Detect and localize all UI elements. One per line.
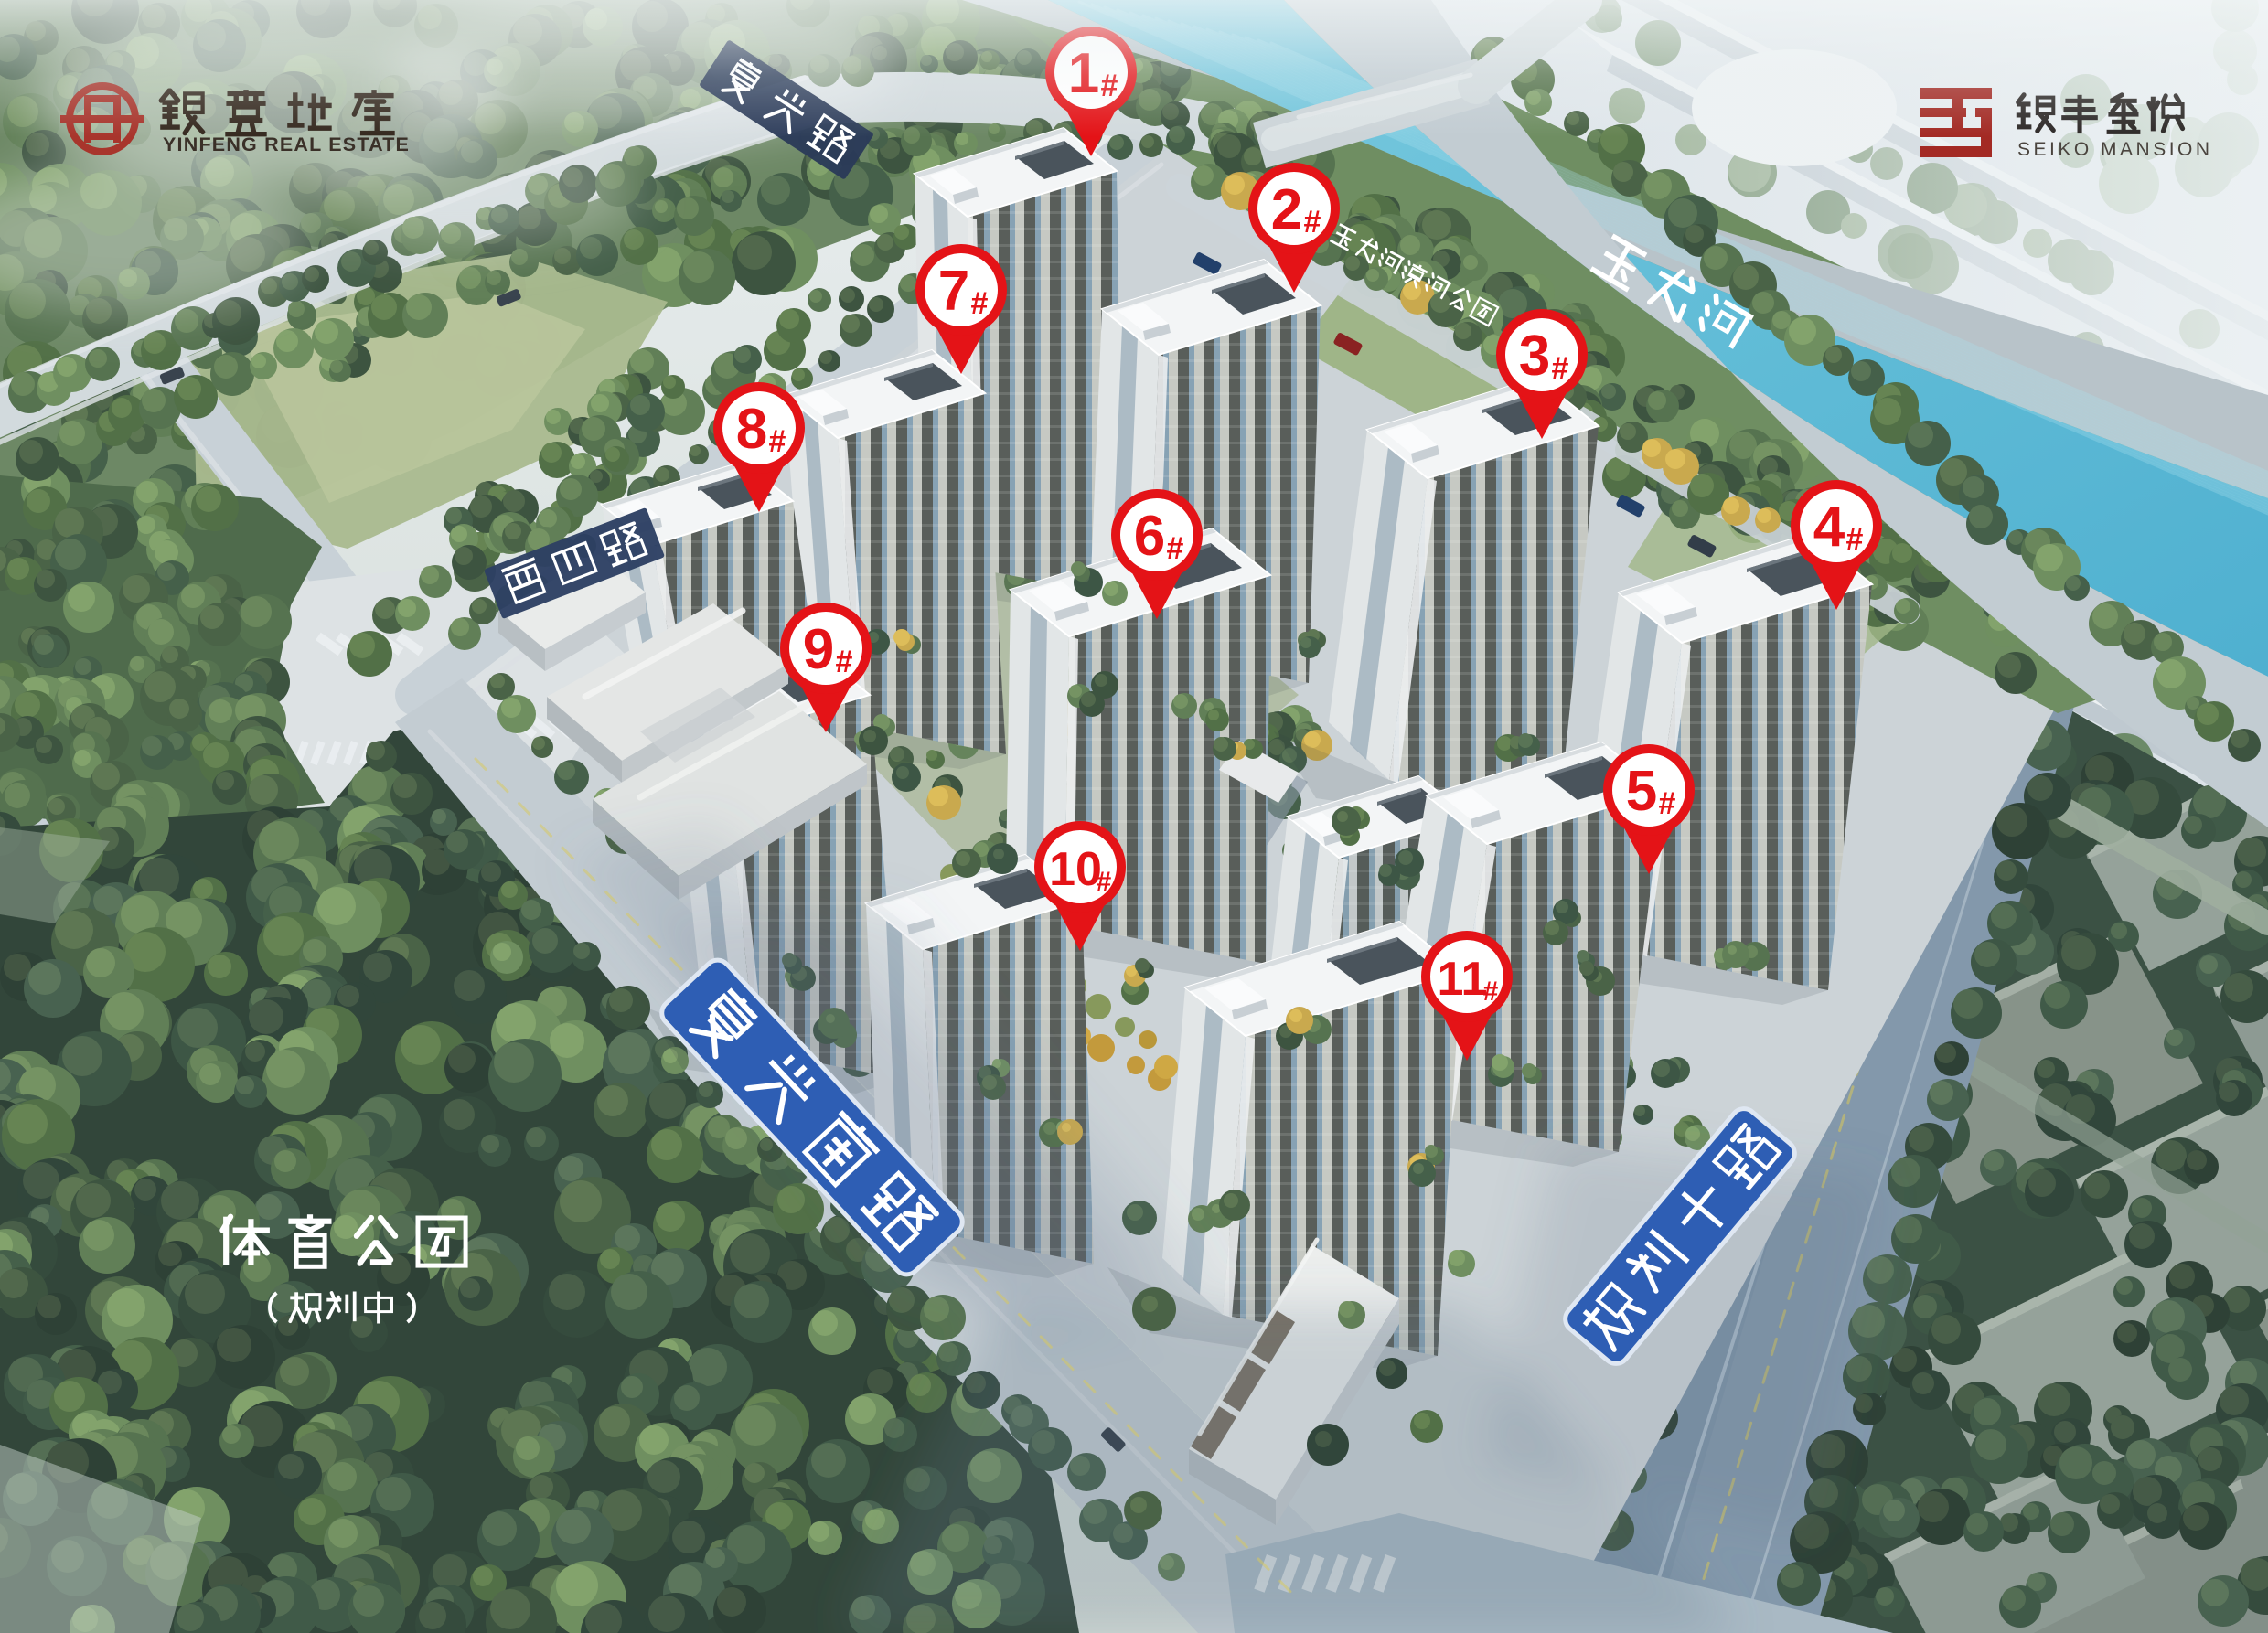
svg-text:3: 3	[1519, 325, 1550, 388]
svg-text:2: 2	[1271, 178, 1302, 241]
svg-text:7: 7	[938, 260, 969, 323]
svg-text:#: #	[769, 424, 786, 459]
svg-text:#: #	[1483, 977, 1499, 1007]
svg-text:10: 10	[1049, 843, 1102, 896]
svg-text:#: #	[1659, 786, 1676, 821]
svg-text:4: 4	[1813, 496, 1845, 559]
svg-text:#: #	[1846, 522, 1864, 557]
svg-text:5: 5	[1626, 760, 1657, 823]
svg-text:8: 8	[736, 398, 767, 461]
svg-text:#: #	[1167, 531, 1184, 566]
svg-text:#: #	[1304, 205, 1321, 240]
svg-text:SEIKO MANSION: SEIKO MANSION	[2017, 139, 2213, 160]
svg-text:9: 9	[803, 618, 834, 681]
svg-text:#: #	[1552, 351, 1569, 386]
svg-text:#: #	[836, 645, 853, 679]
svg-text:11: 11	[1438, 953, 1488, 1006]
svg-text:#: #	[971, 286, 989, 321]
svg-text:6: 6	[1134, 505, 1165, 568]
svg-text:#: #	[1097, 867, 1112, 897]
